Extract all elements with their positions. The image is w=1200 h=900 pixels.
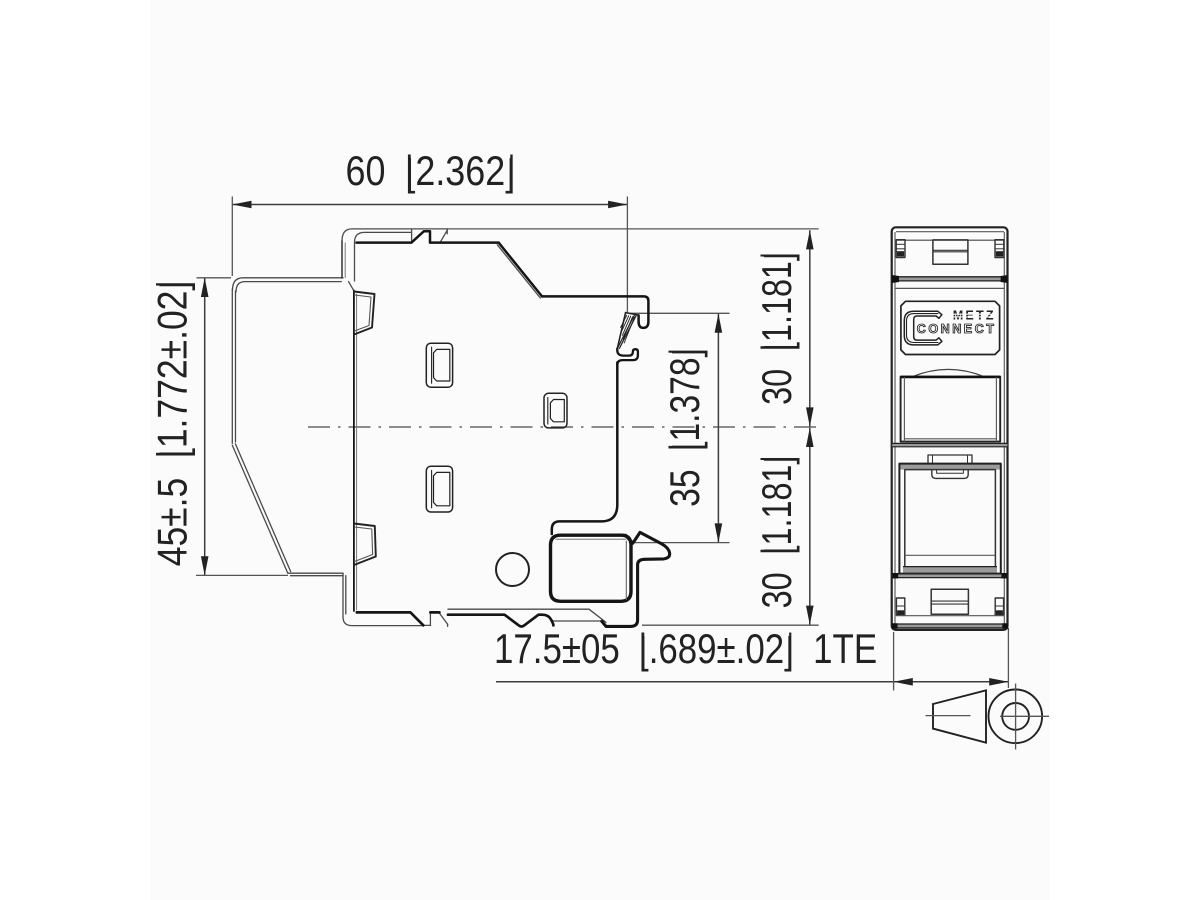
- svg-text:17.5±05 [.689±.02] 1TE: 17.5±05 [.689±.02] 1TE: [494, 626, 877, 673]
- svg-text:60 [2.362]: 60 [2.362]: [346, 148, 516, 194]
- svg-text:45±.5 [1.772±.02]: 45±.5 [1.772±.02]: [150, 281, 196, 567]
- svg-text:35 [1.378]: 35 [1.378]: [663, 348, 709, 507]
- svg-text:30 [1.181]: 30 [1.181]: [753, 252, 800, 405]
- svg-text:CONNECT: CONNECT: [917, 322, 997, 336]
- svg-text:METZ: METZ: [953, 309, 996, 323]
- svg-text:30 [1.181]: 30 [1.181]: [753, 456, 800, 609]
